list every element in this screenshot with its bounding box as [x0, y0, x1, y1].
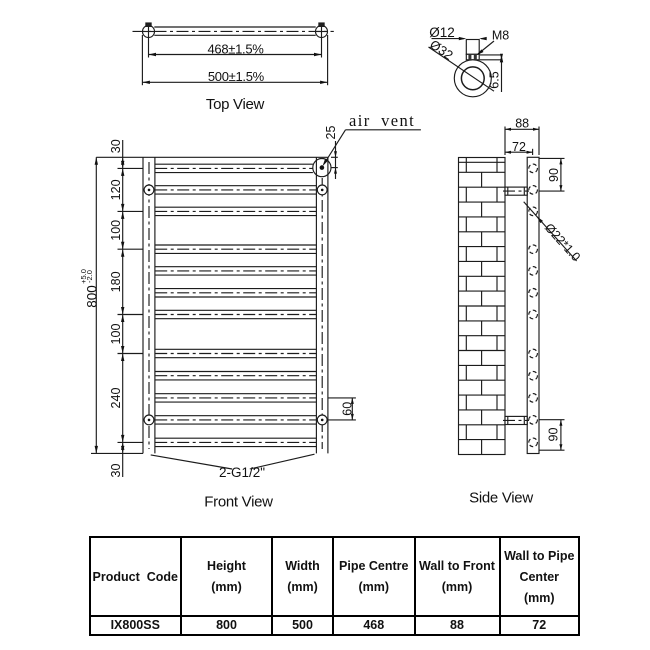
svg-text:Ø22*1.0: Ø22*1.0 [542, 221, 583, 264]
svg-text:2-G1/2": 2-G1/2" [219, 465, 265, 480]
svg-text:30: 30 [109, 464, 123, 478]
svg-text:air vent: air vent [349, 111, 415, 130]
svg-text:Ø12: Ø12 [429, 25, 455, 40]
svg-text:90: 90 [546, 428, 560, 442]
svg-text:800: 800 [85, 285, 100, 308]
svg-text:72: 72 [512, 140, 526, 154]
svg-text:Side View: Side View [469, 490, 533, 507]
svg-text:Front View: Front View [204, 494, 273, 511]
svg-text:100: 100 [109, 324, 123, 345]
svg-text:88: 88 [515, 117, 529, 131]
svg-text:468±1.5%: 468±1.5% [207, 41, 264, 56]
svg-text:60: 60 [340, 402, 354, 416]
svg-text:180: 180 [109, 271, 123, 292]
svg-text:Ø32: Ø32 [427, 37, 456, 63]
svg-text:120: 120 [109, 179, 123, 200]
svg-text:-2.0: -2.0 [85, 270, 94, 283]
svg-text:500±1.5%: 500±1.5% [208, 69, 265, 84]
svg-text:6.5: 6.5 [488, 71, 502, 88]
svg-text:90: 90 [547, 168, 561, 182]
svg-text:Top View: Top View [206, 96, 265, 113]
svg-text:100: 100 [109, 220, 123, 241]
svg-text:M8: M8 [492, 29, 509, 43]
svg-text:30: 30 [109, 139, 123, 153]
svg-text:240: 240 [109, 388, 123, 409]
svg-text:25: 25 [324, 126, 338, 140]
